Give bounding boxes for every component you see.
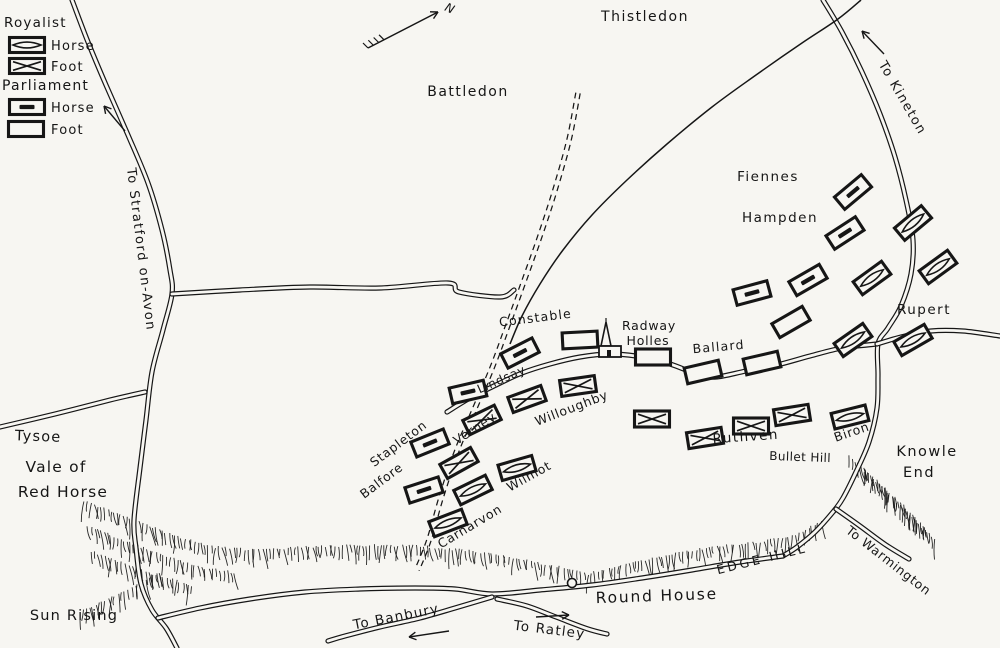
unit-royalist-foot — [773, 404, 810, 425]
label-vale-of: Vale of — [25, 458, 86, 476]
legend-label-royalist-foot: Foot — [51, 60, 84, 75]
unit-parliament-foot — [636, 349, 671, 365]
unit-royalist-foot — [635, 411, 670, 427]
legend-symbol-royalist-foot — [10, 59, 45, 74]
label-hampden: Hampden — [742, 210, 818, 226]
legend-heading-royalist-heading: Royalist — [4, 15, 67, 31]
round-house-marker — [568, 579, 577, 588]
label-knowle: Knowle — [896, 444, 957, 460]
legend-heading-parliament-heading: Parliament — [2, 78, 89, 94]
label-knowle-end: End — [903, 465, 935, 481]
legend-symbol-parliament-foot — [9, 122, 44, 137]
label-bullet-hill: Bullet Hill — [769, 449, 831, 465]
legend-label-parliament-horse: Horse — [51, 101, 95, 116]
map-stage: ThistledonBattledonTo KinetonTo Stratfor… — [0, 0, 1000, 648]
label-radway: Radway — [622, 318, 676, 333]
label-sun-rising: Sun Rising — [30, 608, 118, 624]
label-red-horse: Red Horse — [18, 483, 108, 501]
legend-symbol-royalist-horse — [10, 38, 45, 53]
legend-label-royalist-horse: Horse — [51, 39, 95, 54]
legend-symbol-parliament-horse — [10, 100, 45, 115]
label-rupert: Rupert — [897, 302, 951, 318]
edgehill-battle-map: ThistledonBattledonTo KinetonTo Stratfor… — [0, 0, 1000, 648]
label-fiennes: Fiennes — [737, 169, 799, 185]
legend-label-parliament-foot: Foot — [51, 123, 84, 138]
label-tysoe: Tysoe — [14, 428, 62, 446]
label-thistledon: Thistledon — [600, 9, 689, 25]
label-holles: Holles — [627, 333, 670, 348]
unit-parliament-foot — [562, 331, 598, 349]
label-battledon: Battledon — [427, 84, 509, 100]
